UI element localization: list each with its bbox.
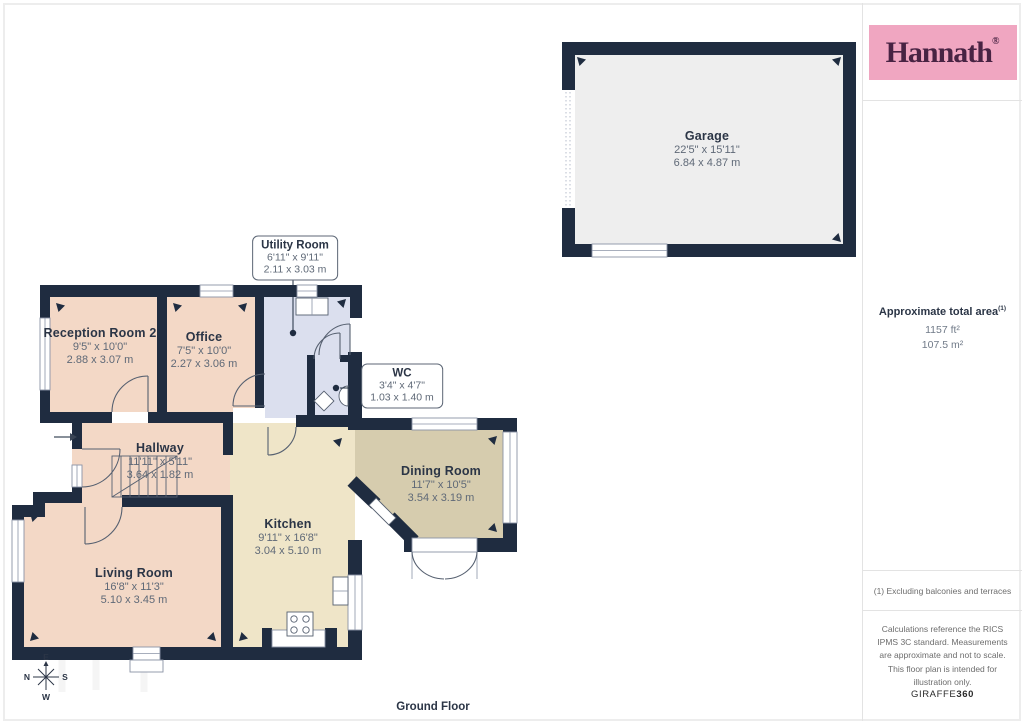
sidebar-divider	[863, 610, 1022, 611]
floorplan-page: { "branding": { "logo_text": "Hannath", …	[0, 0, 1024, 724]
total-area-values: 1157 ft² 107.5 m²	[863, 323, 1022, 353]
label-reception: Reception Room 2 9'5" x 10'0" 2.88 x 3.0…	[44, 326, 157, 366]
total-area-imperial: 1157 ft²	[863, 323, 1022, 338]
total-area-metric: 107.5 m²	[863, 338, 1022, 353]
back-door-opening	[350, 318, 362, 352]
callout-utility: Utility Room 6'11" x 9'11" 2.11 x 3.03 m	[252, 236, 338, 281]
floor-title: Ground Floor	[396, 701, 469, 713]
brand-name: Hannath	[886, 36, 992, 69]
label-garage: Garage 22'5" x 15'11" 6.84 x 4.87 m	[674, 129, 741, 169]
garage-window	[592, 244, 667, 257]
sidebar-divider	[863, 100, 1022, 101]
dining-top-window	[412, 418, 477, 430]
label-living: Living Room 16'8" x 11'3" 5.10 x 3.45 m	[95, 566, 173, 606]
compass-up: E	[43, 652, 49, 662]
brand-logo: Hannath®	[869, 25, 1017, 80]
total-area-block: Approximate total area(1) 1157 ft² 107.5…	[863, 305, 1022, 353]
utility-top-window	[297, 285, 317, 297]
giraffe360-brand-regular: GIRAFFE	[911, 689, 956, 700]
kitchen-right-window	[348, 575, 362, 630]
entry-side-window	[72, 465, 82, 487]
info-sidebar: Hannath® Approximate total area(1) 1157 …	[862, 3, 1022, 721]
label-office: Office 7'5" x 10'0" 2.27 x 3.06 m	[171, 330, 238, 370]
living-left-window	[12, 520, 24, 582]
brand-wordmark: Hannath®	[886, 37, 1000, 68]
compass-left: N	[24, 672, 30, 682]
washing-machine	[296, 298, 328, 315]
stove	[287, 612, 313, 636]
living-bottom-window	[130, 647, 163, 672]
total-area-label-text: Approximate total area	[879, 306, 998, 318]
disclaimer-text: Calculations reference the RICS IPMS 3C …	[863, 623, 1022, 689]
dining-right-window	[503, 432, 517, 523]
registered-mark-icon: ®	[992, 36, 999, 47]
total-area-label: Approximate total area(1)	[863, 305, 1022, 318]
compass-down: W	[42, 692, 51, 702]
callout-wc: WC 3'4" x 4'7" 1.03 x 1.40 m	[361, 364, 443, 409]
french-doors	[412, 538, 477, 579]
sidebar-divider	[863, 570, 1022, 571]
label-dining: Dining Room 11'7" x 10'5" 3.54 x 3.19 m	[401, 464, 481, 504]
office-top-window	[200, 285, 233, 297]
giraffe360-brand: GIRAFFE360	[863, 689, 1022, 700]
label-kitchen: Kitchen 9'11" x 16'8" 3.04 x 5.10 m	[255, 517, 322, 557]
giraffe360-brand-bold: 360	[956, 689, 974, 700]
compass-right: S	[62, 672, 68, 682]
area-footnote: (1) Excluding balconies and terraces	[863, 586, 1022, 596]
total-area-footnote-marker: (1)	[998, 305, 1006, 312]
floorplan-canvas: E N S W Garage 22'5" x 15'11" 6.84 x 4.8…	[0, 0, 862, 724]
kitchen-sink	[333, 577, 348, 605]
label-hallway: Hallway 11'11" x 5'11" 3.64 x 1.82 m	[127, 441, 194, 481]
